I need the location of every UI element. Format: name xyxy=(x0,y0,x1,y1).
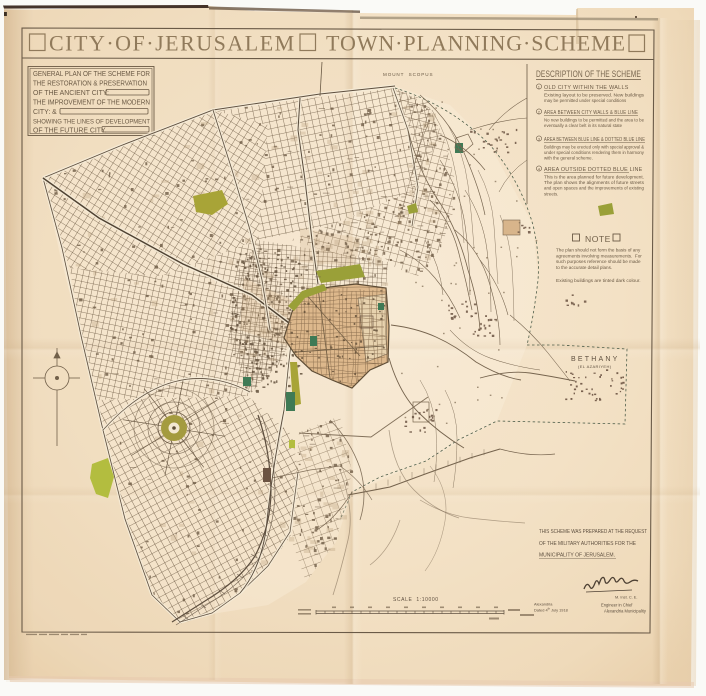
svg-text:with the general scheme.: with the general scheme. xyxy=(544,156,593,161)
svg-text:The plan shows the alignments: The plan shows the alignments of future … xyxy=(544,180,645,185)
svg-text:GENERAL PLAN OF THE SCHEME FOR: GENERAL PLAN OF THE SCHEME FOR xyxy=(33,71,150,78)
svg-text:SCALE 1:10000: SCALE 1:10000 xyxy=(393,597,439,603)
svg-text:AREA BETWEEN BLUE LINE & DOTTE: AREA BETWEEN BLUE LINE & DOTTED BLUE LIN… xyxy=(544,137,645,143)
svg-text:This is the area planned for f: This is the area planned for future deve… xyxy=(544,175,644,180)
svg-text:THE IMPROVEMENT OF THE MODERN: THE IMPROVEMENT OF THE MODERN xyxy=(33,100,150,107)
svg-text:BETHANY: BETHANY xyxy=(571,356,619,363)
svg-text:(EL AZARIYEH): (EL AZARIYEH) xyxy=(578,364,612,369)
svg-text:NOTE: NOTE xyxy=(585,234,611,244)
svg-text:Alexandria Municipality: Alexandria Municipality xyxy=(604,609,647,614)
svg-text:DESCRIPTION OF THE SCHEME: DESCRIPTION OF THE SCHEME xyxy=(536,69,641,79)
svg-text:MOUNT SCOPUS: MOUNT SCOPUS xyxy=(383,72,433,77)
svg-text:eventually a clear belt in its: eventually a clear belt in its natural s… xyxy=(544,123,623,128)
svg-text:M. Inst. C. E.: M. Inst. C. E. xyxy=(615,595,637,600)
svg-text:to the accurate detail plans.: to the accurate detail plans. xyxy=(556,265,612,270)
svg-text:Dated 4th July 1918: Dated 4th July 1918 xyxy=(534,607,568,613)
svg-text:AREA BETWEEN CITY WALLS & BLUE: AREA BETWEEN CITY WALLS & BLUE LINE xyxy=(544,110,638,116)
svg-text:Buildings may be erected only: Buildings may be erected only with speci… xyxy=(544,145,644,150)
svg-text:No new buildings to be permitt: No new buildings to be permitted and the… xyxy=(544,118,645,123)
svg-text:OF THE ANCIENT CITY:: OF THE ANCIENT CITY: xyxy=(33,90,109,97)
svg-text:THE RESTORATION & PRESERVATION: THE RESTORATION & PRESERVATION xyxy=(33,81,147,88)
svg-text:may be permitted under special: may be permitted under special condition… xyxy=(544,98,627,103)
svg-text:such purposes reference should: such purposes reference should be made xyxy=(556,259,641,264)
svg-text:OLD CITY WITHIN THE WALLS: OLD CITY WITHIN THE WALLS xyxy=(544,85,629,91)
svg-text:Engineer in Chief: Engineer in Chief xyxy=(601,603,633,608)
svg-text:AREA OUTSIDE DOTTED BLUE LINE: AREA OUTSIDE DOTTED BLUE LINE xyxy=(544,167,643,173)
svg-text:THIS SCHEME WAS PREPARED AT TH: THIS SCHEME WAS PREPARED AT THE REQUEST xyxy=(539,529,648,535)
svg-text:The plan should not form the b: The plan should not form the basis of an… xyxy=(556,248,641,253)
svg-text:TOWN·PLANNING·SCHEME: TOWN·PLANNING·SCHEME xyxy=(326,31,626,56)
svg-text:agreements involving measureme: agreements involving measurements. For xyxy=(556,253,642,258)
svg-text:OF THE MILITARY AUTHORITIES FO: OF THE MILITARY AUTHORITIES FOR THE xyxy=(539,541,637,547)
svg-text:MUNICIPALITY OF JERUSALEM.: MUNICIPALITY OF JERUSALEM. xyxy=(539,553,615,559)
svg-text:CITY: &: CITY: & xyxy=(33,109,57,116)
svg-text:CITY·OF·JERUSALEM: CITY·OF·JERUSALEM xyxy=(49,31,296,56)
svg-text:SHOWING THE LINES OF DEVELOPME: SHOWING THE LINES OF DEVELOPMENT xyxy=(33,119,150,126)
svg-text:Existing layout to be preserve: Existing layout to be preserved. New bui… xyxy=(544,93,645,98)
svg-text:streets.: streets. xyxy=(544,191,558,196)
svg-text:under special conditions rende: under special conditions rendering them … xyxy=(544,150,645,155)
svg-text:OF THE FUTURE CITY.: OF THE FUTURE CITY. xyxy=(33,128,107,135)
svg-text:and open spaces and the improv: and open spaces and the improvements of … xyxy=(544,186,645,191)
svg-text:Alexandria: Alexandria xyxy=(534,602,553,607)
svg-text:Existing buildings are tinted: Existing buildings are tinted dark colou… xyxy=(556,278,641,284)
